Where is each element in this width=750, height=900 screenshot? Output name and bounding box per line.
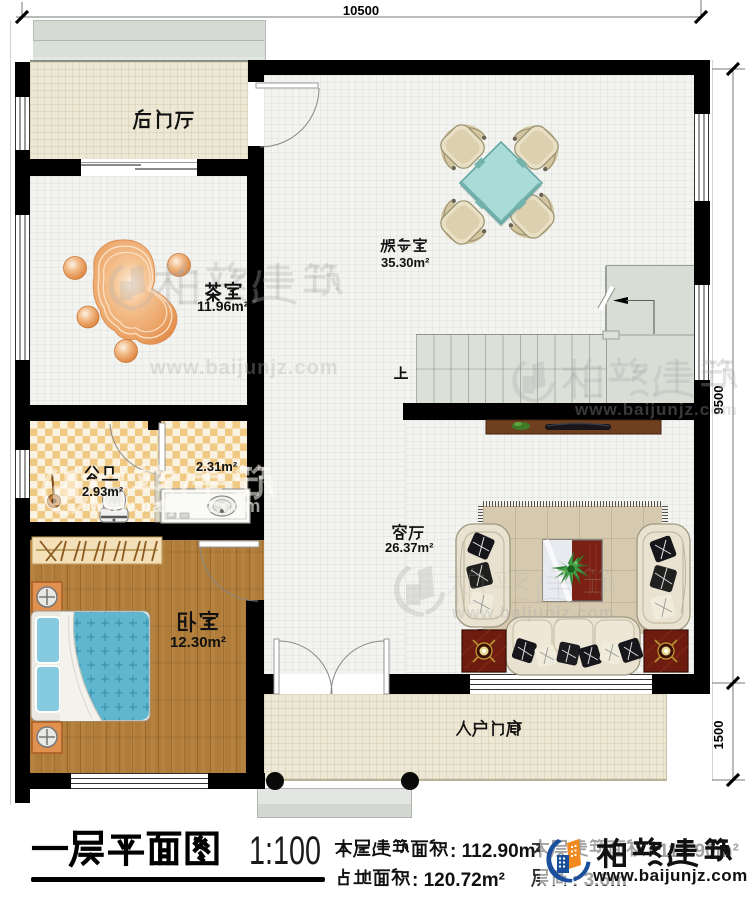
svg-text:12.30m²: 12.30m² (170, 634, 226, 651)
svg-text:www.baijunjz.com: www.baijunjz.com (89, 496, 261, 516)
svg-text:www.baijunjz.com: www.baijunjz.com (574, 400, 738, 419)
svg-text:www.baijunjz.com: www.baijunjz.com (149, 357, 339, 379)
svg-text:35.30m²: 35.30m² (381, 255, 430, 270)
svg-text:11.96m²: 11.96m² (197, 298, 249, 314)
svg-text:2.31m²: 2.31m² (196, 459, 238, 474)
svg-text:: 112.90m²: : 112.90m² (450, 841, 542, 862)
svg-text:2.93m²: 2.93m² (82, 484, 124, 499)
svg-text:: 120.72m²: : 120.72m² (412, 870, 505, 891)
svg-text:1:100: 1:100 (249, 828, 321, 873)
svg-text:www.baijunjz.com: www.baijunjz.com (451, 603, 615, 622)
svg-text:26.37m²: 26.37m² (385, 540, 434, 555)
svg-text:www.baijunjz.com: www.baijunjz.com (592, 866, 748, 885)
